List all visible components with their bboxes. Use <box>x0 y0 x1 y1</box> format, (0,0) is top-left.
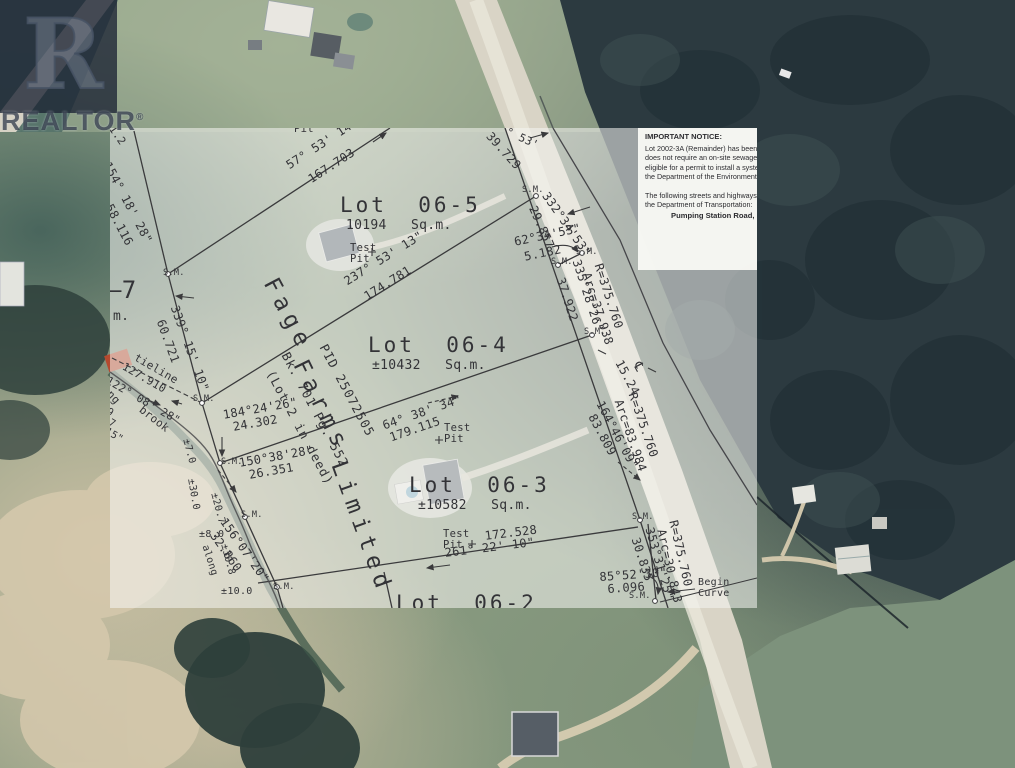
lot4-testpit: Test Pit <box>444 423 471 446</box>
notice-line: eligible for a permit to install a syste… <box>645 163 757 172</box>
notice-line <box>645 182 757 191</box>
survey-plan-overlay: IMPORTANT NOTICE: Lot 2002-3A (Remainder… <box>110 128 757 608</box>
begin-curve: Begin Curve <box>698 578 730 600</box>
lot7-area-frag: m. <box>113 310 129 324</box>
lot4-area: ±10432 Sq.m. <box>372 359 486 373</box>
sm-10: S.M. <box>632 513 654 522</box>
important-notice-box: IMPORTANT NOTICE: Lot 2002-3A (Remainder… <box>638 128 757 270</box>
sm-3: S.M. <box>221 458 243 467</box>
aerial-survey-screenshot: IMPORTANT NOTICE: Lot 2002-3A (Remainder… <box>0 0 1015 768</box>
pm-10: ±10.0 <box>221 587 253 598</box>
sm-2: S.M. <box>193 395 215 404</box>
notice-line: does not require an on-site sewage dis <box>645 153 757 162</box>
building-left-edge <box>0 262 24 306</box>
sm-11: S.M. <box>629 592 651 601</box>
lot2-title: Lot 06-2 <box>396 592 537 608</box>
notice-title: IMPORTANT NOTICE: <box>645 132 757 141</box>
lot3-area: ±10582 Sq.m. <box>418 499 532 513</box>
notice-line: the Department of the Environment and <box>645 172 757 181</box>
sm-5: S.M. <box>273 583 295 592</box>
sm-8: S.M. <box>551 258 573 267</box>
sm-1: S.M. <box>163 269 185 278</box>
sm-4: S.M. <box>241 511 263 520</box>
pm-8: ±8.0 <box>199 530 224 541</box>
lot4-title: Lot 06-4 <box>368 334 509 357</box>
sm-6: S.M. <box>522 186 544 195</box>
lot5-title: Lot 06-5 <box>340 194 481 217</box>
notice-line: The following streets and highways are <box>645 191 757 200</box>
pit-top-frag: Pit <box>294 128 314 135</box>
lot3-title: Lot 06-3 <box>409 474 550 497</box>
notice-line: Lot 2002-3A (Remainder) has been cre <box>645 144 757 153</box>
sm-7: S.M. <box>576 248 598 257</box>
pond <box>347 13 373 31</box>
notice-road-name: Pumping Station Road, <box>671 211 757 220</box>
notice-line: the Department of Transportation: <box>645 200 757 209</box>
sm-9: S.M. <box>584 328 606 337</box>
lot5-area: 10194 Sq.m. <box>346 219 452 233</box>
notice-body: Lot 2002-3A (Remainder) has been credoes… <box>645 144 757 210</box>
lot7-frag: –7 <box>110 278 137 304</box>
